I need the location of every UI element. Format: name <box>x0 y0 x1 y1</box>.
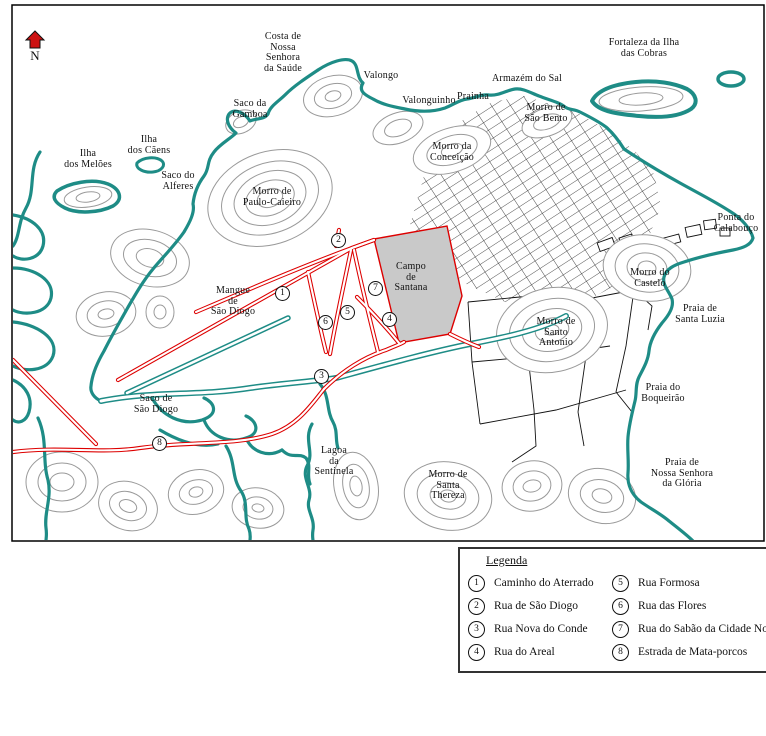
north-label: N <box>30 49 39 63</box>
road-marker-5: 5 <box>340 305 355 320</box>
legend-item-number: 4 <box>468 644 485 661</box>
legend-item-label: Rua de São Diogo <box>494 600 578 613</box>
legend-item-number: 5 <box>612 575 629 592</box>
legend-item: 7 Rua do Sabão da Cidade Nova <box>612 622 766 637</box>
road-marker-2: 2 <box>331 233 346 248</box>
legend-item-label: Caminho do Aterrado <box>494 577 594 590</box>
road-marker-7: 7 <box>368 281 383 296</box>
legend-item-label: Rua Formosa <box>638 577 700 590</box>
legend-column-2: 5 Rua Formosa 6 Rua das Flores 7 Rua do … <box>612 576 766 668</box>
legend-item: 1 Caminho do Aterrado <box>468 576 594 591</box>
road-marker-6: 6 <box>318 315 333 330</box>
legend-item: 3 Rua Nova do Conde <box>468 622 594 637</box>
legend-item: 5 Rua Formosa <box>612 576 766 591</box>
legend-item: 4 Rua do Areal <box>468 645 594 660</box>
legend-item-number: 6 <box>612 598 629 615</box>
legend-item-number: 3 <box>468 621 485 638</box>
legend-item: 6 Rua das Flores <box>612 599 766 614</box>
road-marker-8: 8 <box>152 436 167 451</box>
legend-box: Legenda 1 Caminho do Aterrado 2 Rua de S… <box>458 547 766 673</box>
legend-item-number: 8 <box>612 644 629 661</box>
legend-item-label: Rua Nova do Conde <box>494 623 588 636</box>
legend-item-label: Estrada de Mata-porcos <box>638 646 747 659</box>
legend-item-number: 7 <box>612 621 629 638</box>
road-marker-4: 4 <box>382 312 397 327</box>
legend-item: 2 Rua de São Diogo <box>468 599 594 614</box>
legend-column-1: 1 Caminho do Aterrado 2 Rua de São Diogo… <box>468 576 594 668</box>
legend-item-label: Rua do Sabão da Cidade Nova <box>638 623 766 636</box>
road-marker-1: 1 <box>275 286 290 301</box>
legend-item-number: 1 <box>468 575 485 592</box>
legend-item: 8 Estrada de Mata-porcos <box>612 645 766 660</box>
legend-title: Legenda <box>486 552 527 568</box>
map-page: N Costa de Nossa Senhora da Saúde Valong… <box>0 0 766 736</box>
legend-item-label: Rua das Flores <box>638 600 706 613</box>
road-marker-3: 3 <box>314 369 329 384</box>
legend-item-number: 2 <box>468 598 485 615</box>
legend-item-label: Rua do Areal <box>494 646 555 659</box>
